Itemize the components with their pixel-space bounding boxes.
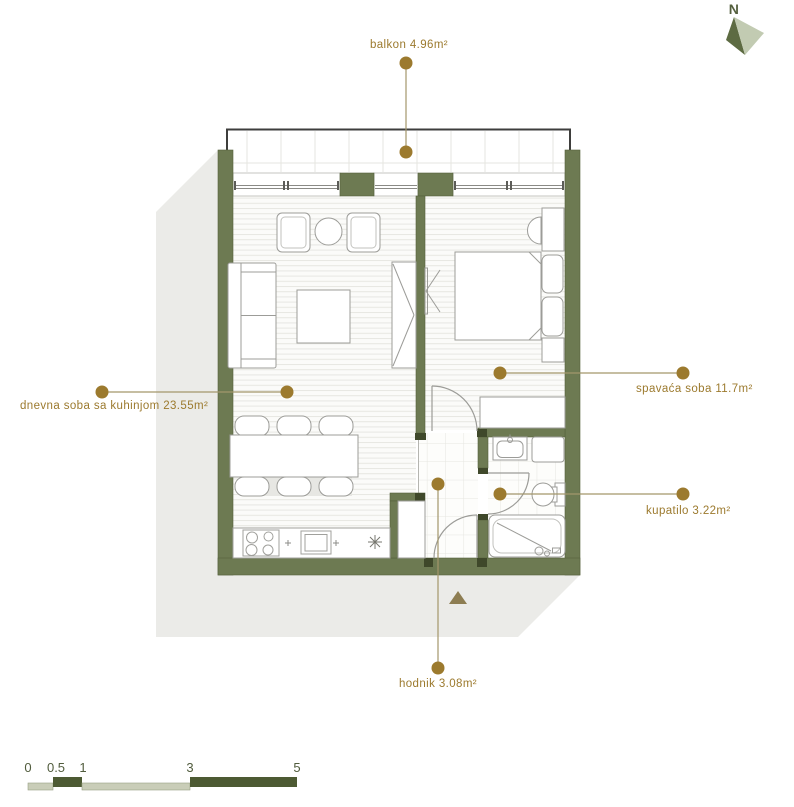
dimension-dot	[281, 386, 294, 399]
north-label: N	[722, 1, 746, 17]
coffee-table	[297, 290, 350, 343]
bathtub	[489, 515, 565, 557]
north-arrow-icon	[726, 17, 764, 55]
dimension-dot	[677, 367, 690, 380]
dimension-dot	[432, 478, 445, 491]
label-dnevna-soba: dnevna soba sa kuhinjom 23.55m²	[20, 399, 208, 413]
bedroom-closet	[480, 397, 565, 428]
scale-tick-0: 0	[24, 760, 31, 775]
dimension-dot	[494, 488, 507, 501]
wall-niche-left	[390, 501, 398, 558]
scale-tick-5: 5	[293, 760, 300, 775]
kitchen-sink	[301, 531, 331, 554]
window-balcony-door	[374, 173, 418, 196]
washing-machine	[532, 437, 564, 462]
living-room-floor	[233, 196, 416, 558]
hall-closet	[398, 501, 425, 558]
scale-tick-05: 0.5	[47, 760, 65, 775]
dimension-dot	[400, 57, 413, 70]
bathroom-sink	[493, 435, 527, 461]
scale-tick-1: 1	[79, 760, 86, 775]
dining-chairs-top	[235, 416, 353, 436]
armchair	[277, 213, 310, 252]
dimension-dot	[96, 386, 109, 399]
window-living	[233, 173, 340, 196]
desk	[542, 208, 564, 251]
scale-tick-3: 3	[186, 760, 193, 775]
pillow	[542, 297, 563, 336]
label-balkon: balkon 4.96m²	[370, 38, 448, 52]
windows	[233, 173, 565, 196]
balcony	[227, 130, 570, 174]
dimension-dot	[432, 662, 445, 675]
label-kupatilo: kupatilo 3.22m²	[646, 504, 731, 518]
dimension-dot	[400, 146, 413, 159]
hallway-floor	[419, 433, 478, 558]
dimension-dot	[494, 367, 507, 380]
wall-bedroom-bathroom	[478, 428, 565, 437]
nightstand	[542, 338, 564, 362]
wall-bathroom-upper	[478, 437, 488, 468]
label-spavaca-soba: spavaća soba 11.7m²	[636, 382, 753, 396]
dining-chairs-bottom	[235, 477, 353, 496]
pillow	[542, 255, 563, 293]
wall-divider	[416, 196, 425, 433]
wall-bathroom-lower	[478, 520, 488, 558]
wall-right	[565, 150, 580, 575]
armchair	[347, 213, 380, 252]
wall-window-pier-b	[418, 173, 453, 196]
dining-table	[230, 435, 358, 477]
floor-plan-page: balkon 4.96m² dnevna soba sa kuhinjom 23…	[0, 0, 794, 807]
side-table	[315, 218, 342, 245]
wall-bottom	[218, 558, 580, 575]
sofa	[228, 263, 276, 368]
dimension-dot	[677, 488, 690, 501]
stove	[243, 530, 279, 556]
light-symbol	[368, 535, 382, 549]
kitchen	[233, 528, 390, 558]
window-bedroom	[453, 173, 565, 196]
wardrobe	[392, 262, 416, 368]
wall-window-pier-a	[340, 173, 374, 196]
label-hodnik: hodnik 3.08m²	[399, 677, 477, 691]
scale-bar	[28, 777, 297, 790]
